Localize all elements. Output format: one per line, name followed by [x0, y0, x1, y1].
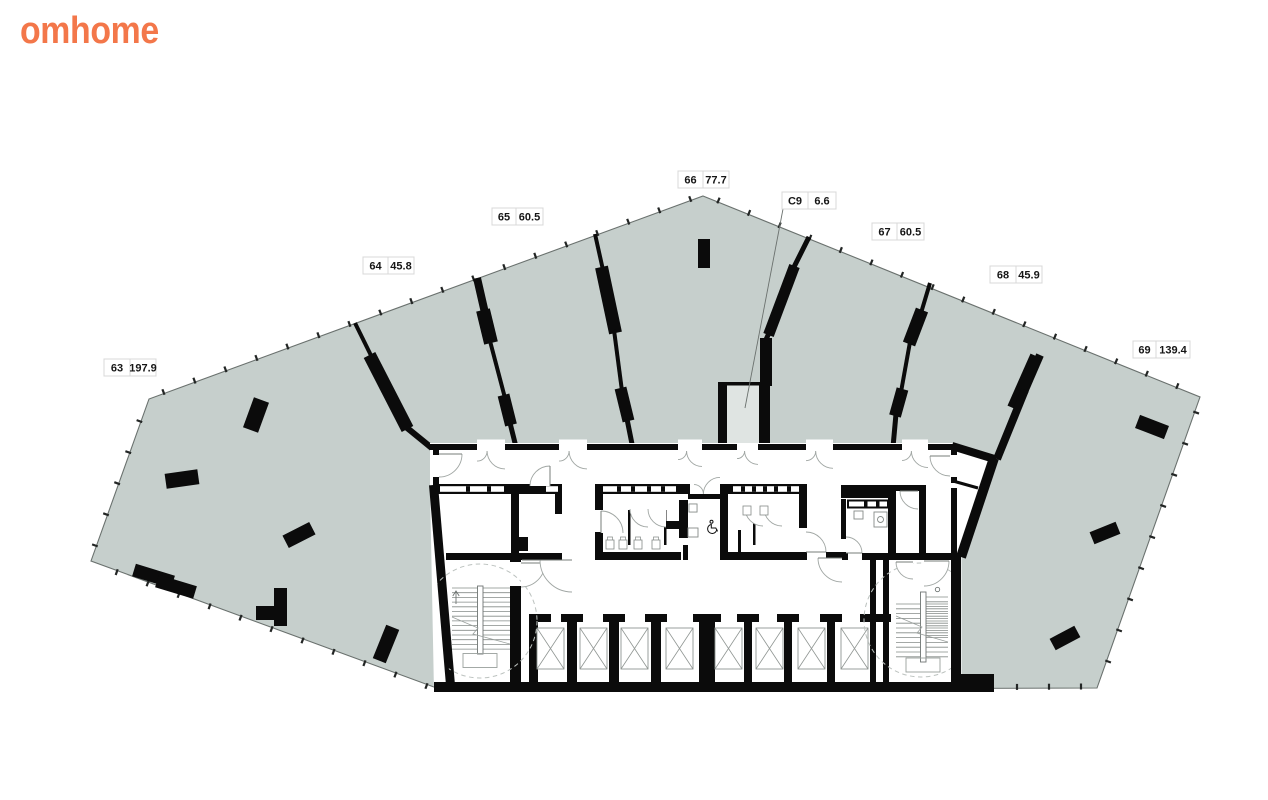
svg-text:45.9: 45.9	[1018, 270, 1039, 282]
svg-text:60.5: 60.5	[900, 227, 921, 239]
svg-text:139.4: 139.4	[1159, 345, 1187, 357]
svg-text:67: 67	[878, 227, 890, 239]
svg-text:65: 65	[498, 212, 510, 224]
svg-text:60.5: 60.5	[519, 212, 540, 224]
svg-text:63: 63	[111, 363, 123, 375]
svg-text:45.8: 45.8	[390, 261, 411, 273]
svg-text:68: 68	[997, 270, 1009, 282]
svg-text:64: 64	[369, 261, 382, 273]
svg-text:197.9: 197.9	[129, 363, 157, 375]
svg-text:C9: C9	[788, 196, 802, 208]
svg-text:66: 66	[684, 175, 696, 187]
svg-text:69: 69	[1138, 345, 1150, 357]
svg-text:6.6: 6.6	[814, 196, 829, 208]
svg-text:77.7: 77.7	[705, 175, 726, 187]
